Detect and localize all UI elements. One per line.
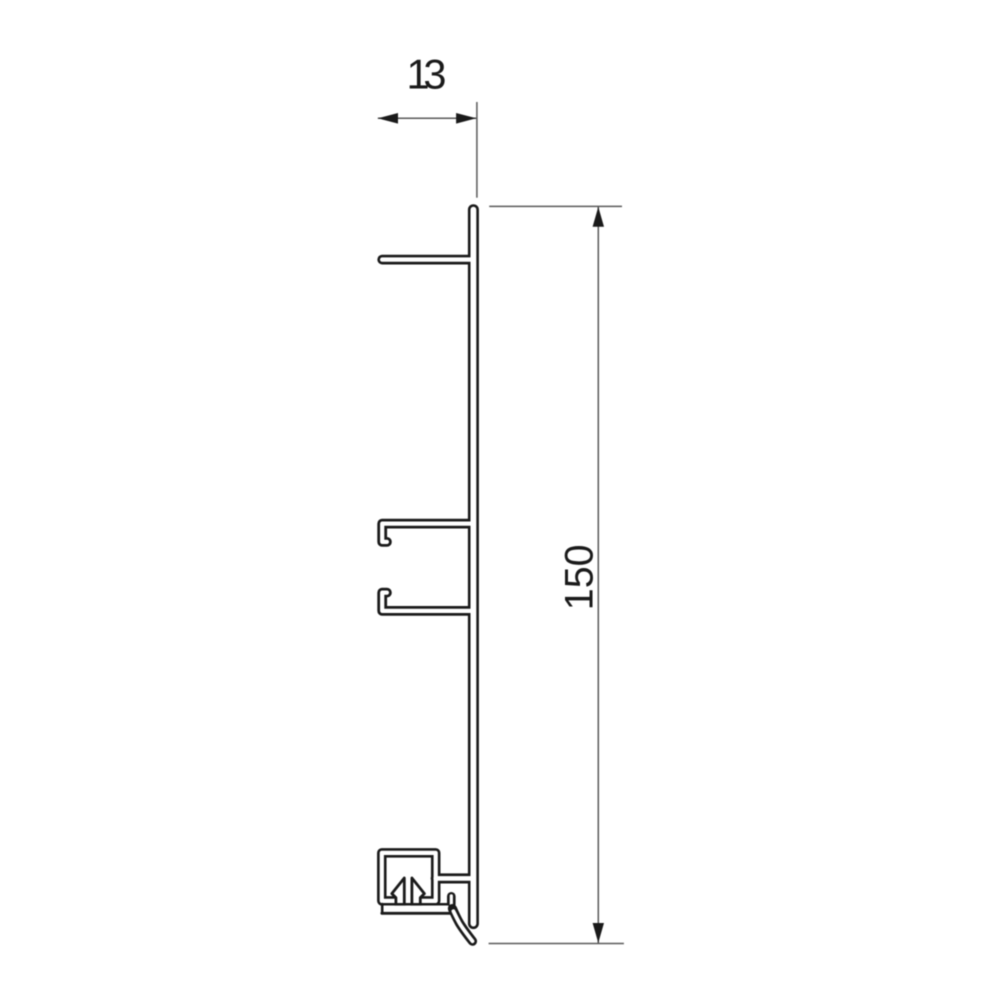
svg-text:150: 150	[557, 544, 601, 610]
svg-text:13: 13	[407, 50, 447, 97]
